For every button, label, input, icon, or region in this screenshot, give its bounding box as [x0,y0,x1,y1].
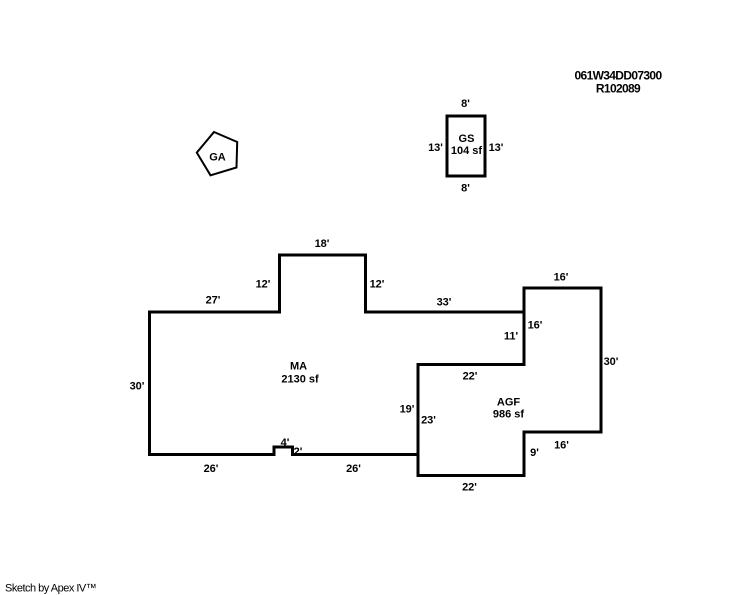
svg-text:061W34DD07300: 061W34DD07300 [575,69,663,83]
svg-text:23': 23' [421,415,436,427]
svg-text:16': 16' [554,440,569,452]
svg-text:12': 12' [256,279,271,291]
svg-text:Sketch by Apex IV™: Sketch by Apex IV™ [5,583,96,595]
svg-text:33': 33' [437,297,452,309]
svg-text:30': 30' [130,381,145,393]
svg-text:9': 9' [530,447,539,459]
svg-text:2': 2' [294,446,303,458]
svg-text:16': 16' [554,272,569,284]
svg-text:8': 8' [461,98,470,110]
svg-text:30': 30' [604,356,619,368]
svg-text:18': 18' [315,238,330,250]
svg-text:22': 22' [462,482,477,494]
svg-text:AGF: AGF [497,397,521,409]
svg-text:26': 26' [204,463,219,475]
svg-text:11': 11' [504,331,519,343]
svg-text:13': 13' [428,142,443,154]
svg-text:104 sf: 104 sf [451,145,483,157]
svg-text:R102089: R102089 [596,82,641,96]
svg-text:19': 19' [400,404,415,416]
svg-text:986 sf: 986 sf [493,409,525,421]
svg-text:GS: GS [459,133,475,145]
svg-text:MA: MA [290,361,307,373]
svg-text:22': 22' [463,371,478,383]
svg-text:27': 27' [206,295,221,307]
svg-text:26': 26' [346,463,361,475]
svg-text:2130 sf: 2130 sf [281,374,319,386]
svg-text:12': 12' [370,279,385,291]
svg-text:13': 13' [489,142,504,154]
svg-text:GA: GA [209,152,226,164]
svg-text:16': 16' [528,320,543,332]
svg-text:8': 8' [461,183,470,195]
svg-text:4': 4' [281,437,290,449]
